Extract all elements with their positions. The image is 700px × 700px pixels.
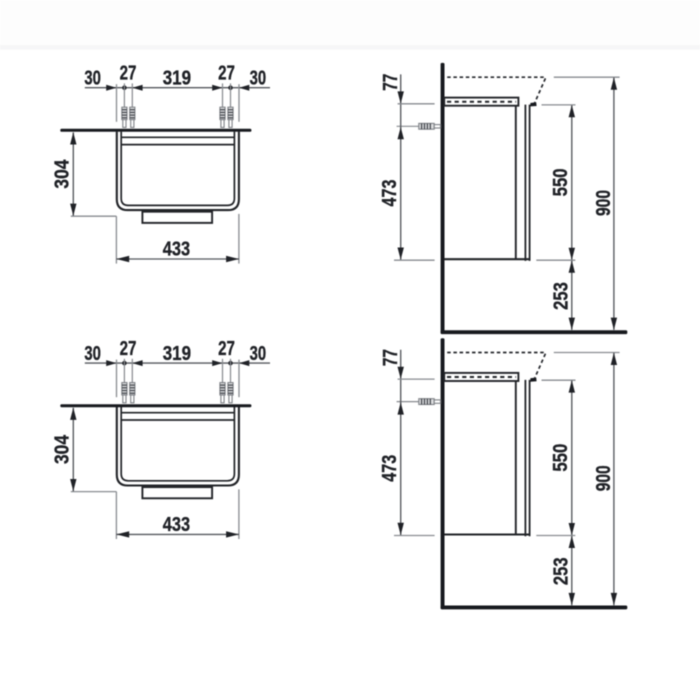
svg-text:27: 27 (120, 337, 137, 360)
svg-text:30: 30 (84, 66, 101, 89)
svg-text:433: 433 (163, 237, 190, 260)
svg-text:900: 900 (592, 465, 615, 491)
svg-text:550: 550 (548, 168, 571, 196)
svg-text:77: 77 (379, 74, 402, 91)
svg-text:304: 304 (51, 435, 74, 464)
svg-text:253: 253 (549, 282, 572, 310)
svg-text:30: 30 (250, 66, 267, 89)
svg-text:319: 319 (163, 341, 191, 364)
svg-text:77: 77 (379, 349, 402, 366)
svg-text:253: 253 (549, 557, 572, 585)
svg-text:27: 27 (218, 61, 235, 84)
svg-text:27: 27 (218, 337, 235, 360)
svg-text:550: 550 (548, 444, 571, 472)
svg-text:473: 473 (377, 455, 400, 482)
svg-text:433: 433 (163, 512, 190, 535)
svg-text:319: 319 (163, 66, 191, 89)
svg-text:900: 900 (592, 190, 615, 216)
svg-text:27: 27 (120, 61, 137, 84)
svg-text:30: 30 (84, 341, 101, 364)
svg-text:473: 473 (377, 180, 400, 207)
svg-text:30: 30 (250, 341, 267, 364)
svg-text:304: 304 (51, 159, 74, 188)
